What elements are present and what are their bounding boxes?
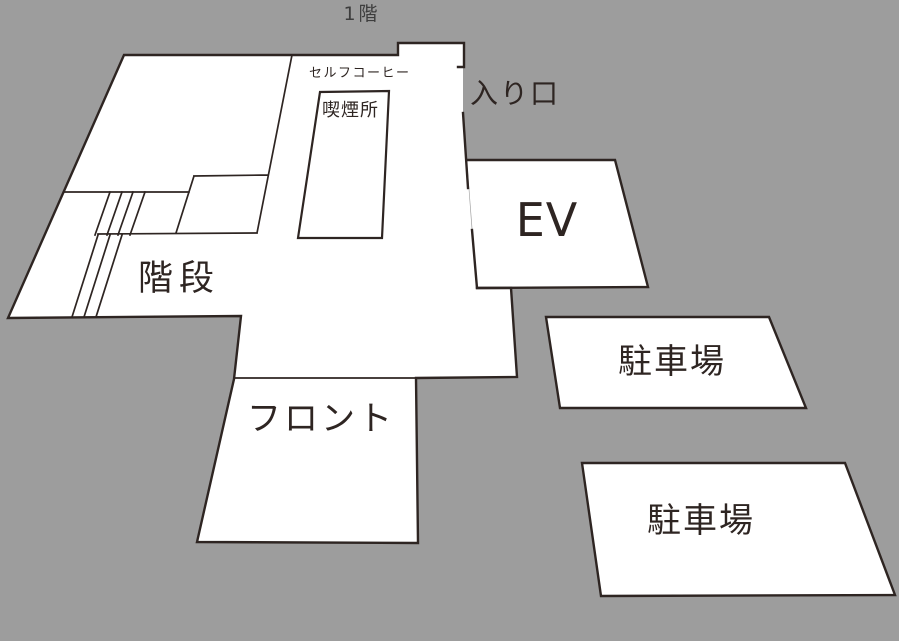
label-front-desk: フロント bbox=[247, 399, 395, 439]
label-smoking-area: 喫煙所 bbox=[322, 100, 379, 121]
label-parking-2: 駐車場 bbox=[647, 501, 755, 541]
label-stairs: 階段 bbox=[138, 259, 220, 299]
label-ev: EV bbox=[516, 193, 579, 247]
floor-map: 1階セルフコーヒー喫煙所入り口EV階段フロント駐車場駐車場 bbox=[0, 0, 899, 641]
label-parking-1: 駐車場 bbox=[618, 342, 726, 382]
floor-map-canvas: 1階セルフコーヒー喫煙所入り口EV階段フロント駐車場駐車場 bbox=[0, 0, 899, 641]
label-entrance: 入り口 bbox=[470, 77, 560, 110]
floor-title: 1階 bbox=[343, 3, 380, 25]
label-self-coffee: セルフコーヒー bbox=[309, 66, 411, 81]
